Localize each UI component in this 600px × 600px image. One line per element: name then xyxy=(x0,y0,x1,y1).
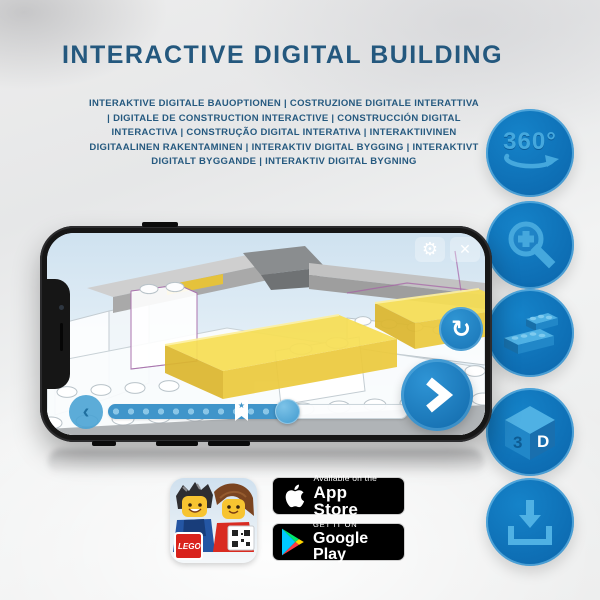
app-store-tagline: Available on the xyxy=(314,474,395,483)
lego-logo-text: LEGO xyxy=(178,542,201,551)
close-button[interactable]: ✕ xyxy=(450,237,480,262)
zoom-in-icon xyxy=(502,217,558,273)
360-label: 360° xyxy=(503,132,557,152)
phone-reflection xyxy=(48,449,484,475)
apple-icon xyxy=(282,482,306,510)
next-step-button[interactable] xyxy=(401,359,473,431)
google-play-label: Google Play xyxy=(313,531,395,563)
brick-steps-icon xyxy=(500,305,560,361)
rotate-view-button[interactable]: ↻ xyxy=(439,307,483,351)
phone-volume-button xyxy=(156,441,198,446)
slider-fill xyxy=(108,404,288,419)
slider-handle[interactable] xyxy=(275,399,300,424)
google-play-badge[interactable]: GET IT ON Google Play xyxy=(272,523,405,561)
feature-360-rotation: 360° xyxy=(486,109,574,197)
lego-app-artwork: LEGO xyxy=(170,478,257,563)
cube-d-label: D xyxy=(537,432,549,451)
google-play-tagline: GET IT ON xyxy=(313,521,395,529)
rotate-icon: ↻ xyxy=(451,315,471,344)
feature-bricks xyxy=(486,289,574,377)
build-progress-slider[interactable]: ★ xyxy=(108,404,408,419)
front-camera xyxy=(59,305,64,310)
360-arrow-icon xyxy=(501,152,559,174)
lego-app-icon[interactable]: LEGO xyxy=(170,478,257,563)
phone-side-button xyxy=(142,222,178,227)
back-chevron-icon: ‹ xyxy=(83,401,90,424)
phone-screen: ⚙ ✕ ↻ ‹ ★ xyxy=(47,233,485,435)
close-icon: ✕ xyxy=(459,241,471,258)
next-arrow-icon xyxy=(420,375,454,415)
feature-download xyxy=(486,478,574,566)
phone-notch xyxy=(47,279,70,389)
cube-3-label: 3 xyxy=(513,433,522,452)
feature-3d-view: 3 D xyxy=(486,388,574,476)
multilingual-subtitle: INTERAKTIVE DIGITALE BAUOPTIONEN | COSTR… xyxy=(88,97,480,170)
phone-volume-button xyxy=(208,441,250,446)
google-play-icon xyxy=(282,528,305,556)
3d-cube-icon: 3 D xyxy=(501,402,559,462)
phone-mockup: ⚙ ✕ ↻ ‹ ★ xyxy=(40,226,492,442)
previous-step-button[interactable]: ‹ xyxy=(69,395,103,429)
download-icon xyxy=(503,496,557,548)
feature-zoom xyxy=(486,201,574,289)
settings-button[interactable]: ⚙ xyxy=(415,237,445,262)
page-title: INTERACTIVE DIGITAL BUILDING xyxy=(0,41,565,70)
app-store-label: App Store xyxy=(314,484,395,518)
phone-side-button xyxy=(92,441,116,446)
poster-background: INTERACTIVE DIGITAL BUILDING INTERAKTIVE… xyxy=(0,0,600,600)
gear-icon: ⚙ xyxy=(422,239,438,260)
speaker-slit xyxy=(60,323,63,351)
app-store-badge[interactable]: Available on the App Store xyxy=(272,477,405,515)
